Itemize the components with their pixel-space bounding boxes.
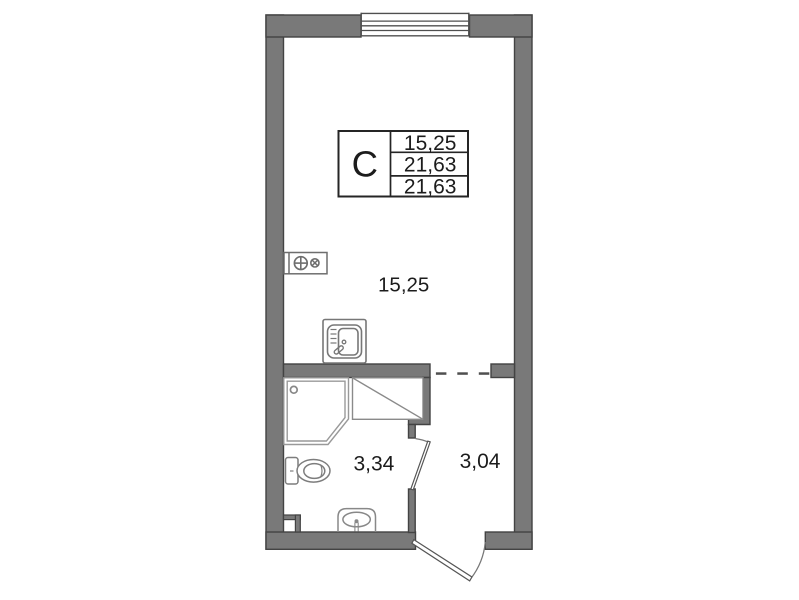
- svg-text:21,63: 21,63: [404, 175, 457, 198]
- svg-text:15,25: 15,25: [378, 274, 429, 297]
- svg-text:3,04: 3,04: [460, 450, 501, 473]
- svg-text:21,63: 21,63: [404, 154, 457, 177]
- svg-text:3,34: 3,34: [353, 453, 394, 476]
- svg-text:15,25: 15,25: [404, 132, 457, 155]
- svg-text:C: C: [352, 144, 378, 185]
